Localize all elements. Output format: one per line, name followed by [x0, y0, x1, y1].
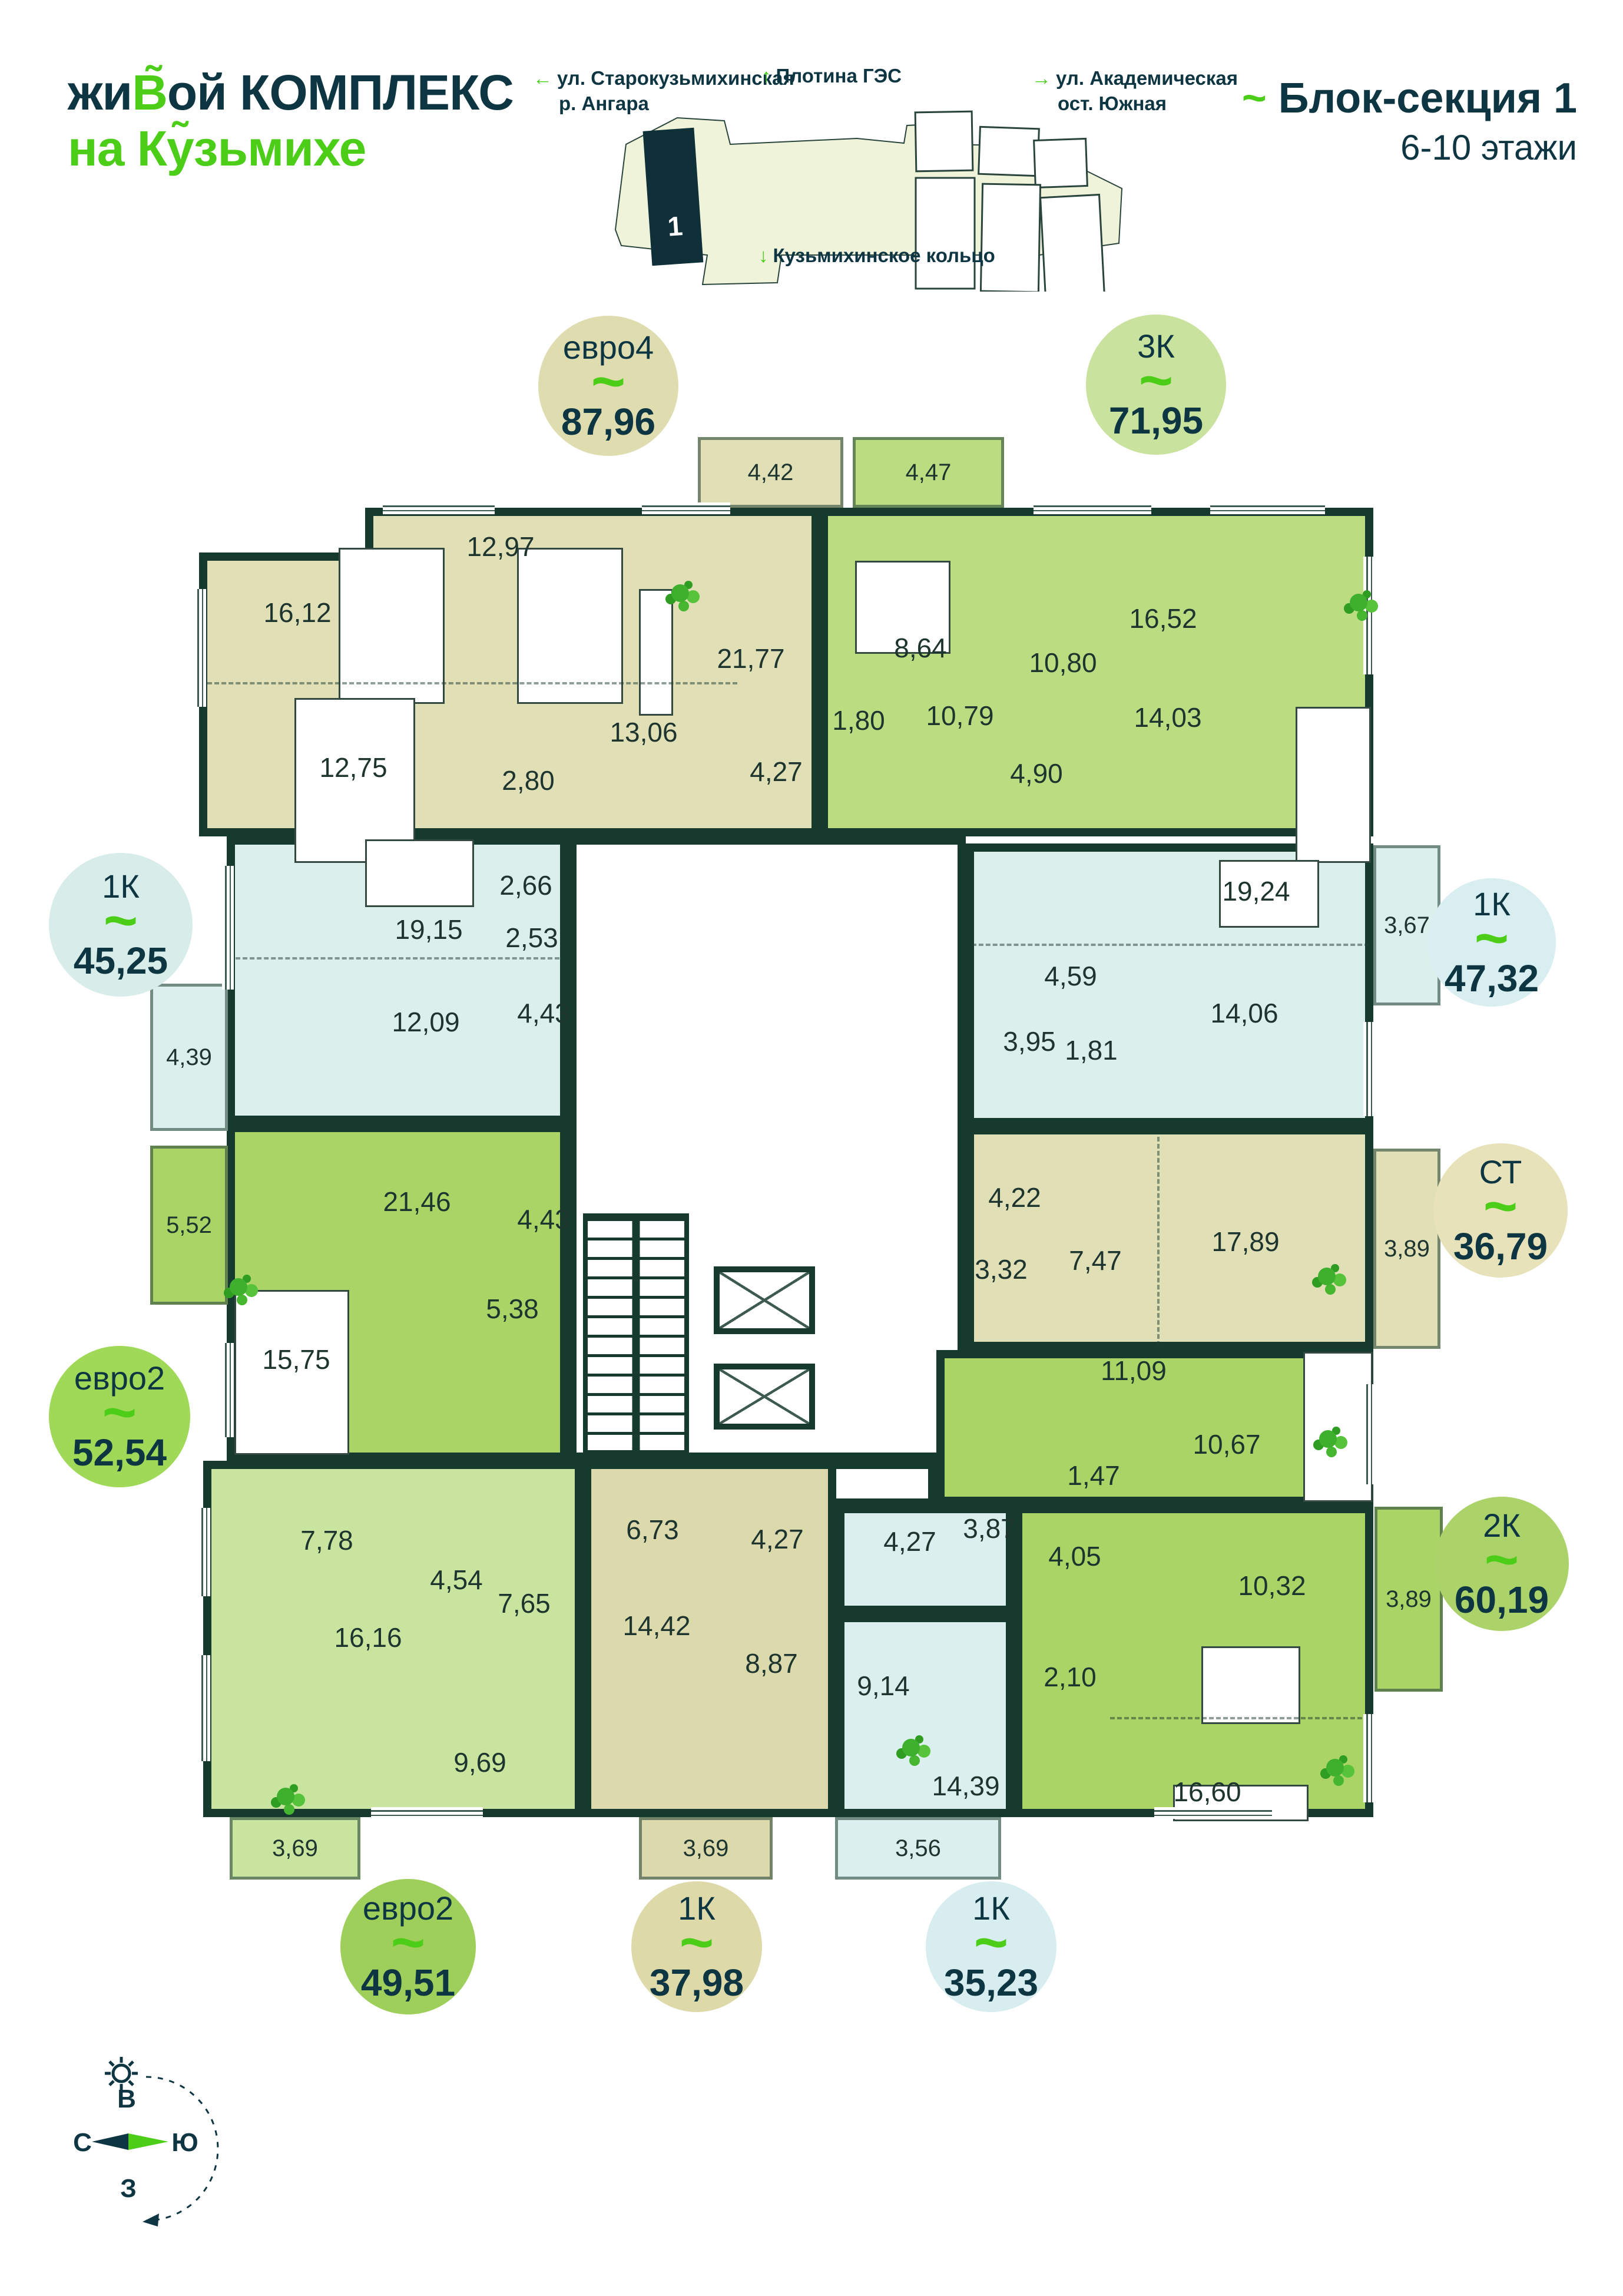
room-area-label: 7,78	[300, 1524, 353, 1556]
apartment-badge-1k-47: 1К~47,32	[1427, 878, 1556, 1007]
staircase	[583, 1213, 689, 1455]
tilde-icon: ~	[591, 370, 625, 393]
room-area-label: 17,89	[1211, 1226, 1279, 1258]
room-area-label: 10,67	[1193, 1428, 1260, 1460]
room-area-label: 4,05	[1048, 1540, 1101, 1572]
room-area-label: 3,87	[963, 1513, 1016, 1544]
street-label-akademicheskaya: →ул. Академическаяост. Южная	[1032, 66, 1238, 117]
balcony-area-label: 3,69	[683, 1835, 729, 1862]
furniture	[517, 548, 623, 704]
apartment-badge-1k-35: 1К~35,23	[926, 1881, 1056, 2012]
plant-icon	[277, 1788, 294, 1805]
plant-icon	[230, 1278, 247, 1296]
balcony-area-label: 4,47	[906, 459, 952, 486]
plant-icon	[1350, 594, 1367, 611]
street-label-kuzmikhinskoe-koltso: ↓Кузьмихинское кольцо	[758, 243, 995, 269]
compass-needle-green	[128, 2133, 168, 2150]
room-area-label: 8,87	[745, 1647, 798, 1679]
room-area-label: 14,39	[932, 1770, 999, 1802]
furniture	[1296, 707, 1371, 863]
balcony-area-label: 4,42	[748, 459, 794, 486]
balcony-area-label: 3,56	[895, 1835, 941, 1862]
room-area-label: 19,15	[395, 914, 462, 945]
room-area-label: 14,03	[1134, 702, 1201, 733]
room-area-label: 14,42	[622, 1610, 690, 1642]
plant-icon	[1326, 1759, 1344, 1776]
street-subname: ост. Южная	[1058, 91, 1238, 117]
apartment-badge-euro4: евро4~87,96	[538, 316, 678, 456]
balcony: 4,39	[150, 984, 228, 1131]
room-area-label: 9,69	[453, 1746, 506, 1778]
room-area-label: 7,65	[498, 1587, 551, 1619]
room-area-label: 21,77	[717, 643, 784, 674]
room-area-label: 7,47	[1069, 1245, 1122, 1276]
apartment-badge-1k-45: 1К~45,25	[49, 853, 193, 997]
room-area-label: 12,75	[319, 752, 387, 783]
room-area-label: 2,80	[502, 765, 555, 796]
elevator-shaft	[714, 1266, 815, 1334]
street-name: ул. Академическая	[1056, 67, 1238, 89]
compass-east-label: В	[117, 2085, 136, 2113]
tilde-icon: ~	[974, 1931, 1008, 1954]
furniture	[639, 589, 673, 716]
room-area-label: 12,97	[466, 531, 534, 563]
direction-arrow-icon: →	[1032, 67, 1051, 89]
plant-icon	[671, 584, 689, 602]
room-area-label: 8,64	[894, 632, 947, 664]
tilde-icon: ~	[104, 909, 138, 932]
apartment-area-value: 37,98	[650, 1964, 744, 2001]
balcony-area-label: 5,52	[166, 1212, 212, 1239]
room-area-label: 4,59	[1044, 960, 1097, 992]
floor-plan-page: жиВ̃ой КОМПЛЕКС на Ку̃зьмихе ~ Блок-секц…	[0, 0, 1623, 2296]
room-area-label: 16,52	[1129, 603, 1197, 634]
window	[1154, 1807, 1272, 1819]
room-area-label: 13,06	[610, 716, 677, 748]
apartment-area-value: 45,25	[74, 942, 168, 980]
plant-icon	[902, 1739, 920, 1756]
balcony: 3,89	[1374, 1507, 1443, 1692]
street-name: Плотина ГЭС	[776, 65, 902, 87]
window	[198, 1655, 210, 1761]
balcony: 4,47	[853, 437, 1004, 508]
direction-arrow-icon: ↓	[758, 244, 769, 266]
room-area-label: 10,32	[1238, 1570, 1306, 1602]
floor-plan: 16,1212,9721,7713,0612,752,804,274,428,6…	[0, 0, 1623, 2296]
room-area-label: 15,75	[262, 1344, 330, 1375]
room-area-label: 2,66	[499, 869, 552, 901]
apartment-badge-euro2-52: евро2~52,54	[49, 1346, 190, 1487]
room-area-label: 19,24	[1222, 875, 1290, 907]
balcony: 3,69	[230, 1817, 360, 1880]
plant-icon	[1319, 1430, 1337, 1448]
balcony-area-label: 3,89	[1386, 1586, 1432, 1613]
room-area-label: 4,27	[750, 756, 803, 788]
compass-west-label: З	[120, 2174, 137, 2203]
room-area-label: 2,53	[505, 922, 558, 954]
direction-arrow-icon: ↑	[761, 65, 771, 87]
direction-arrow-icon: ←	[533, 67, 552, 89]
window	[1363, 557, 1375, 674]
room-area-label: 4,43	[517, 997, 570, 1029]
apartment-st	[966, 1126, 1373, 1350]
zone-divider	[1110, 1717, 1369, 1719]
furniture	[365, 839, 474, 907]
tilde-icon: ~	[1475, 927, 1509, 950]
zone-divider	[972, 944, 1369, 946]
tilde-icon: ~	[1483, 1195, 1518, 1218]
furniture	[1201, 1646, 1300, 1724]
room-area-label: 4,54	[430, 1564, 483, 1596]
room-area-label: 1,47	[1067, 1460, 1120, 1491]
apartment-area-value: 71,95	[1109, 402, 1203, 439]
tilde-icon: ~	[1485, 1548, 1519, 1572]
compass-arc-arrow	[143, 2214, 159, 2226]
zone-divider	[207, 682, 737, 684]
apartment-badge-euro2-49: евро2~49,51	[340, 1879, 476, 2014]
apartment-area-value: 36,79	[1453, 1228, 1548, 1265]
room-area-label: 16,16	[334, 1622, 402, 1653]
room-area-label: 6,73	[626, 1514, 679, 1546]
furniture	[339, 548, 445, 704]
balcony: 3,56	[835, 1817, 1001, 1880]
tilde-icon: ~	[1139, 369, 1173, 392]
room-area-label: 4,27	[883, 1526, 936, 1557]
window	[194, 589, 206, 707]
apartment-badge-2k: 2К~60,19	[1435, 1497, 1569, 1631]
room-area-label: 1,81	[1065, 1034, 1118, 1066]
room-area-label: 16,12	[263, 597, 331, 628]
apartment-badge-3k: 3К~71,95	[1086, 315, 1226, 455]
furniture	[1303, 1352, 1373, 1502]
balcony-area-label: 3,69	[272, 1835, 318, 1862]
room-area-label: 4,22	[988, 1182, 1041, 1213]
balcony: 4,42	[698, 437, 843, 508]
window	[1034, 502, 1151, 514]
room-area-label: 14,06	[1210, 997, 1278, 1029]
apartment-badge-1k-37: 1К~37,98	[631, 1881, 762, 2012]
room-area-label: 3,32	[975, 1253, 1028, 1285]
zone-divider	[1157, 1137, 1160, 1346]
window	[642, 502, 730, 514]
window	[1210, 502, 1325, 514]
room-area-label: 4,27	[751, 1523, 804, 1555]
room-area-label: 21,46	[383, 1186, 451, 1218]
window	[1363, 1022, 1375, 1116]
zone-divider	[236, 957, 559, 960]
balcony: 5,52	[150, 1146, 228, 1305]
apartment-area-value: 52,54	[72, 1434, 167, 1471]
moon-icon	[111, 2204, 124, 2229]
street-name: Кузьмихинское кольцо	[773, 244, 995, 266]
room-area-label: 9,14	[857, 1670, 910, 1702]
window	[383, 502, 495, 514]
window	[198, 1508, 210, 1596]
balcony-area-label: 3,89	[1384, 1236, 1430, 1262]
room-area-label: 1,80	[832, 704, 885, 736]
room-area-label: 16,60	[1173, 1776, 1241, 1808]
room-area-label: 5,38	[486, 1293, 539, 1325]
apartment-area-value: 87,96	[561, 403, 655, 441]
balcony: 3,89	[1373, 1149, 1440, 1349]
room-area-label: 12,09	[392, 1006, 459, 1038]
window	[222, 1343, 234, 1437]
room-area-label: 10,79	[926, 700, 993, 732]
compass-icon: В С Ю З	[69, 2049, 234, 2249]
room-area-label: 11,09	[1101, 1355, 1167, 1387]
apartment-area-value: 35,23	[944, 1964, 1038, 2001]
tilde-icon: ~	[391, 1931, 425, 1954]
compass-south-label: Ю	[171, 2128, 198, 2157]
plant-icon	[1318, 1268, 1336, 1285]
apartment-area-value: 47,32	[1445, 960, 1539, 997]
apartment-area-value: 49,51	[361, 1964, 455, 2001]
compass-needle-dark	[92, 2133, 128, 2150]
apartment-badge-st: СТ~36,79	[1433, 1143, 1568, 1278]
tilde-icon: ~	[680, 1931, 714, 1954]
window	[1363, 1384, 1375, 1484]
room-area-label: 4,90	[1010, 757, 1063, 789]
street-subname: р. Ангара	[559, 91, 794, 117]
room-area-label: 3,95	[1003, 1025, 1056, 1057]
balcony-area-label: 3,67	[1384, 912, 1430, 939]
balcony-area-label: 4,39	[166, 1044, 212, 1071]
balcony: 3,69	[639, 1817, 773, 1880]
room-area-label: 2,10	[1044, 1661, 1097, 1693]
apartment-1k-37	[583, 1461, 836, 1817]
room-area-label: 4,43	[517, 1203, 570, 1235]
apartment-area-value: 60,19	[1455, 1581, 1549, 1619]
elevator-shaft	[714, 1364, 815, 1430]
street-label-starokuzmikhinskaya: ←ул. Старокузьмихинскаяр. Ангара	[533, 66, 794, 117]
window	[1363, 1714, 1375, 1802]
tilde-icon: ~	[102, 1401, 137, 1424]
street-label-plotina-ges: ↑Плотина ГЭС	[761, 64, 902, 89]
street-name: ул. Старокузьмихинская	[557, 67, 794, 89]
room-area-label: 10,80	[1029, 647, 1097, 679]
window	[222, 866, 234, 990]
window	[371, 1807, 483, 1819]
compass-north-label: С	[73, 2128, 92, 2157]
